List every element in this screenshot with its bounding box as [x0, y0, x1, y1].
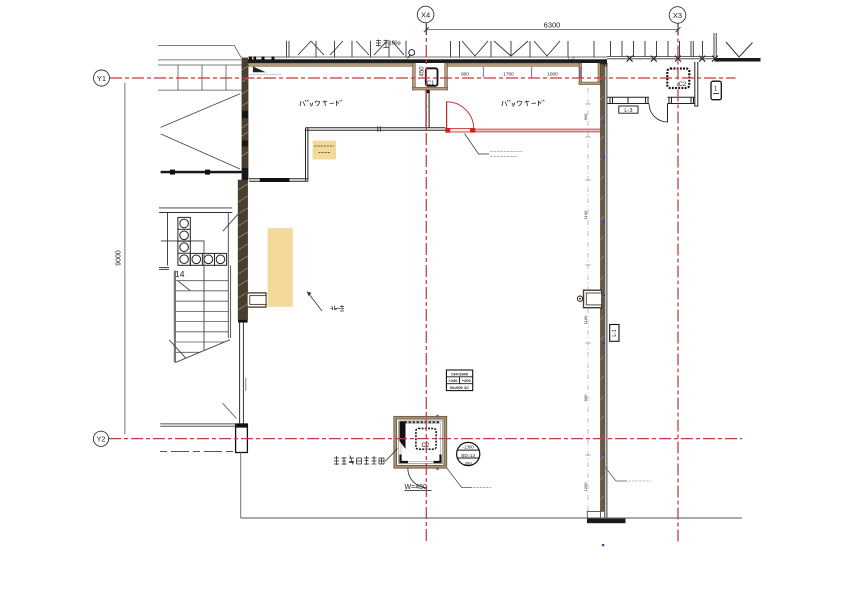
svg-text:Y1: Y1 [97, 74, 106, 83]
svg-text:100φ: 100φ [389, 41, 401, 47]
svg-text:1100: 1100 [583, 315, 588, 324]
svg-text:C2: C2 [422, 443, 430, 449]
svg-text:1100: 1100 [583, 210, 588, 219]
svg-text:CH=2940: CH=2940 [451, 371, 469, 376]
svg-text:14: 14 [175, 269, 185, 279]
svg-text:C1: C1 [427, 80, 435, 87]
svg-text:900: 900 [461, 72, 469, 78]
svg-text:900: 900 [583, 394, 588, 401]
svg-text:L-1: L-1 [612, 329, 618, 336]
svg-text:X3: X3 [673, 11, 682, 20]
svg-text:L-3: L-3 [624, 108, 632, 114]
svg-text:9000: 9000 [116, 250, 123, 266]
svg-text:600: 600 [583, 113, 588, 120]
svg-text:6300: 6300 [544, 21, 561, 30]
svg-text:450: 450 [465, 461, 473, 466]
svg-text:-1300: -1300 [463, 445, 475, 450]
svg-text:W=900 1C: W=900 1C [450, 385, 469, 390]
svg-text:BD=13: BD=13 [461, 453, 475, 458]
svg-text:1000: 1000 [547, 72, 558, 78]
svg-text:L-2: L-2 [568, 57, 575, 62]
svg-text:X4: X4 [421, 10, 430, 19]
svg-text:+200: +200 [462, 378, 472, 383]
svg-text:W=450: W=450 [405, 484, 427, 491]
svg-text:Y2: Y2 [97, 435, 106, 444]
svg-text:+230: +230 [448, 378, 458, 383]
svg-text:C2: C2 [679, 82, 687, 88]
svg-text:1200: 1200 [583, 482, 588, 492]
svg-text:450: 450 [420, 66, 426, 77]
svg-text:1700: 1700 [503, 72, 514, 78]
